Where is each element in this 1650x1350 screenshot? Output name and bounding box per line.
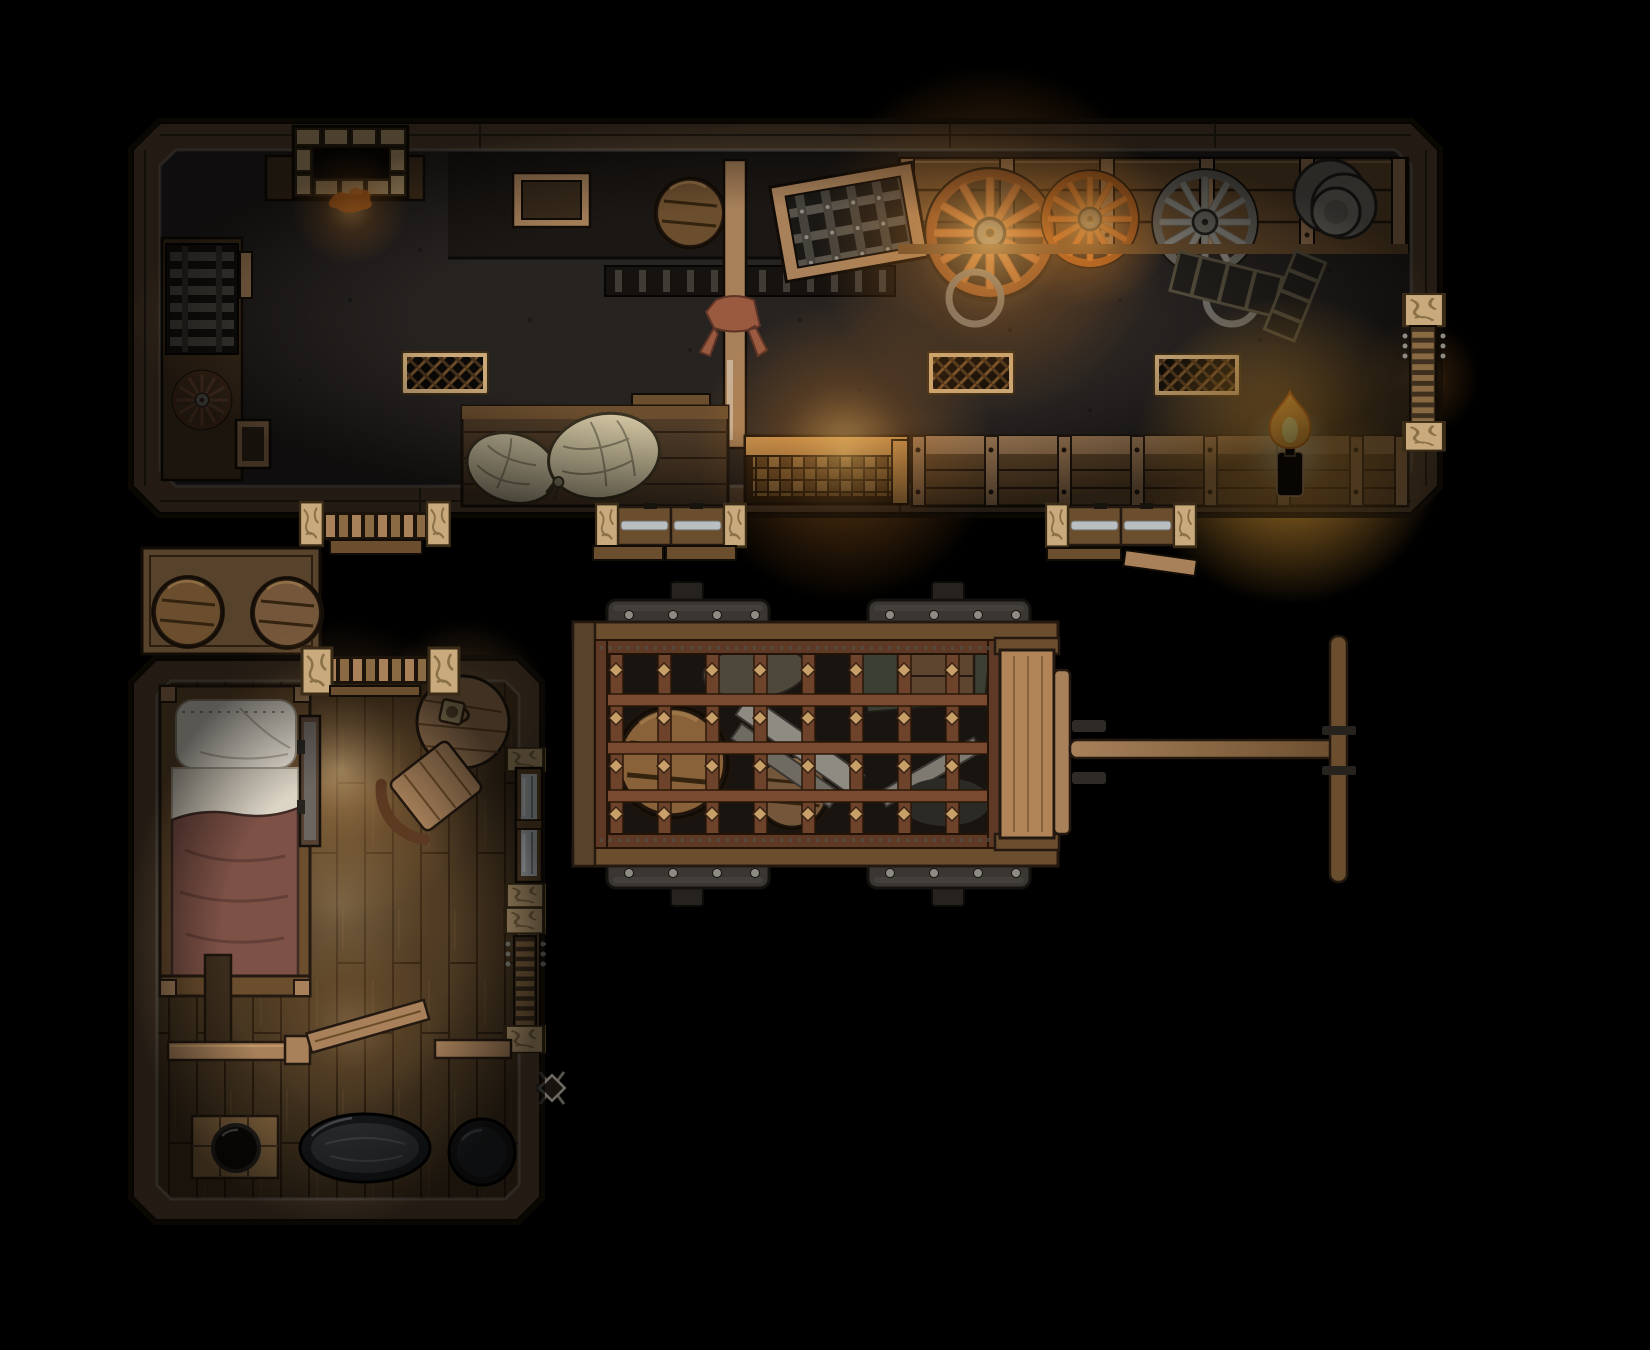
double-door-b[interactable] (593, 503, 746, 560)
door-step (1047, 548, 1121, 560)
shelf-barrel-1 (151, 575, 225, 649)
workshop-hall (128, 65, 1480, 605)
workshop-vignette (128, 118, 1443, 518)
wall-ladder (1410, 326, 1436, 424)
bedroom (128, 548, 565, 1225)
battlemap-stage (0, 0, 1650, 1350)
bedroom-vignette (128, 655, 545, 1225)
tow-crossbar (1330, 636, 1347, 882)
wagon-left-cap (573, 622, 595, 866)
door-step (666, 546, 736, 560)
door-step (593, 546, 663, 560)
map-canvas[interactable] (0, 0, 1650, 1350)
tow-shaft (1070, 740, 1338, 758)
driver-seat (995, 638, 1070, 850)
